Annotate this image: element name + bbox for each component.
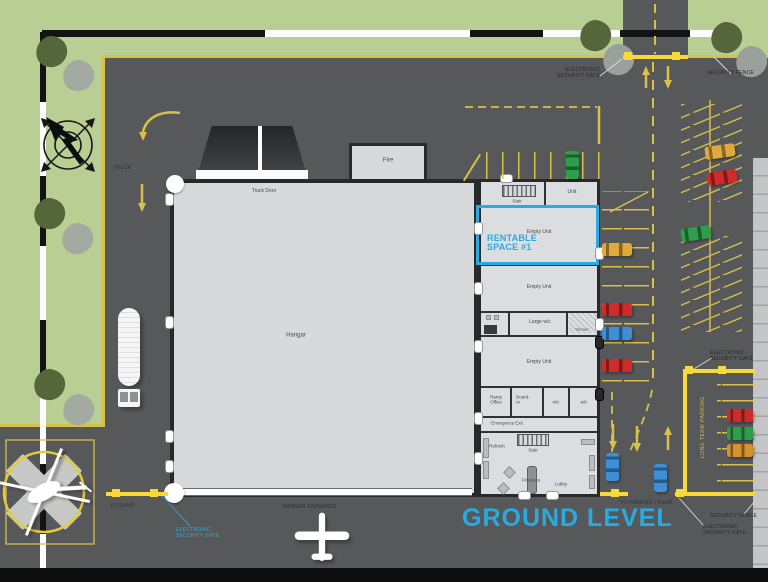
wall	[481, 335, 597, 337]
door	[165, 316, 174, 329]
unit-label: Unit	[568, 189, 577, 195]
gate-post	[676, 489, 684, 497]
truck-ramp-post	[258, 126, 262, 172]
hangar-entrance-label: HANGAR ENTRANCE	[283, 504, 337, 510]
rentable-line2: SPACE #1	[487, 243, 537, 252]
longterm-fence-left	[683, 369, 687, 495]
wall	[481, 431, 597, 433]
door	[474, 412, 483, 425]
stair-label: Stair	[528, 447, 537, 452]
wc-label: w/c	[553, 399, 560, 404]
security-fence-label-top: SECURITY FENCE	[707, 70, 754, 76]
wall	[481, 386, 597, 388]
wc-label: w/c	[581, 399, 588, 404]
car-red	[602, 303, 632, 316]
car-yellow	[602, 243, 632, 256]
perimeter-fence-top	[42, 30, 718, 37]
north-arrow	[46, 117, 82, 163]
fuel-truck-tank	[118, 308, 140, 386]
table	[589, 455, 595, 471]
gate-label-line2: SECURITY GATE	[545, 73, 600, 79]
gate-post	[150, 489, 158, 497]
site-plan: Fire RENTABLE SPACE #1	[0, 0, 768, 582]
car-blue	[602, 327, 632, 340]
gate-post	[112, 489, 120, 497]
emergency-exit-label: Emergency Exit	[491, 420, 523, 425]
wc-fixture	[486, 315, 491, 320]
door	[165, 430, 174, 443]
ramp-office-line2: Office	[490, 400, 502, 405]
boundary-line-left	[102, 55, 105, 427]
security-fence-label-bottom: SECURITY FENCE	[710, 513, 757, 519]
counter	[483, 461, 489, 479]
empty-unit-label: Empty Unit	[527, 359, 551, 365]
table	[581, 439, 595, 445]
door	[165, 460, 174, 473]
door	[474, 282, 483, 295]
wall	[568, 386, 570, 416]
car-red	[602, 359, 632, 372]
electronic-gate-label-top: ELECTRONIC SECURITY GATE	[545, 67, 600, 80]
entrance-road	[623, 0, 688, 57]
electronic-gate-label-longterm: ELECTRONIC SECURITY GATE	[710, 350, 753, 363]
page-title: GROUND LEVEL	[462, 504, 673, 533]
longterm-gate-bottom	[675, 492, 755, 496]
gate-post	[611, 489, 619, 497]
wall	[544, 182, 546, 205]
car-green	[727, 427, 753, 440]
shower-label: Shower	[575, 328, 589, 333]
truck-door-label: Truck Door	[252, 188, 277, 194]
wall	[542, 386, 544, 416]
gate-label-line2: SECURITY GATE	[710, 356, 753, 362]
car-blue	[654, 464, 667, 492]
empty-unit-label: Empty Unit	[527, 229, 551, 235]
fuel-truck-cab	[118, 389, 140, 407]
lobby-label: Lobby	[555, 481, 567, 486]
fuel-truck	[116, 308, 142, 408]
door	[546, 491, 559, 500]
empty-unit-label: Empty Unit	[527, 284, 551, 290]
fireplace-label: Fireplace	[522, 477, 541, 482]
gate-post	[672, 52, 680, 60]
to-ramp-label: TO RAMP	[110, 503, 134, 509]
sidewalk	[753, 158, 768, 570]
wall	[510, 386, 512, 416]
stair-hatch	[502, 185, 536, 197]
bottom-border-band	[0, 568, 768, 582]
counter	[483, 438, 489, 458]
table	[589, 475, 595, 489]
boarder-line2: er	[516, 400, 530, 405]
door	[595, 388, 604, 401]
column-post	[166, 175, 184, 193]
boarder-label: Board- er	[516, 395, 530, 406]
hangar-label: Hangar	[286, 332, 306, 339]
long-term-parking-label: LONG TERM PARKING	[700, 396, 706, 458]
gate-post	[624, 52, 632, 60]
refresh-label: Refresh	[489, 443, 505, 448]
hangar-building	[170, 179, 478, 497]
fire-room-label: Fire	[383, 157, 393, 164]
car-red	[727, 409, 753, 422]
door	[474, 452, 483, 465]
car-blue	[606, 453, 619, 481]
car-orange	[727, 444, 753, 457]
gate-post	[718, 366, 726, 374]
parking-lines-north	[486, 152, 600, 179]
truck-ramp-slab	[196, 170, 308, 179]
wall	[481, 416, 597, 418]
door	[518, 491, 531, 500]
utility-box	[484, 325, 497, 334]
wc-fixture	[494, 315, 499, 320]
wall	[566, 311, 568, 335]
wall	[508, 311, 510, 335]
door	[165, 193, 174, 206]
electronic-gate-label-bottom: ELECTRONIC SECURITY GATE	[703, 524, 746, 537]
truck-window	[120, 392, 128, 402]
rentable-space-label: RENTABLE SPACE #1	[487, 234, 537, 253]
gate-label-line2: SECURITY GATE	[176, 533, 219, 539]
gate-label-line2: SECURITY GATE	[703, 530, 746, 536]
truck-window	[130, 392, 138, 402]
door	[474, 340, 483, 353]
ramp-office-label: Ramp Office	[490, 395, 502, 406]
hangar-entrance-track	[182, 488, 472, 496]
large-wc-label: Large w/c	[529, 319, 551, 325]
truck-label: TRUCK	[113, 165, 131, 171]
stair-hatch	[517, 434, 549, 446]
stair-label: Stair	[512, 198, 521, 203]
electronic-gate-label-ramp: ELECTRONIC SECURITY GATE	[176, 527, 219, 540]
car-green	[566, 151, 579, 179]
compass-rose	[41, 117, 95, 172]
boundary-line-ramp	[0, 424, 104, 427]
apron-ramp-area	[0, 425, 103, 570]
perimeter-fence-left	[40, 32, 46, 572]
door	[474, 222, 483, 235]
